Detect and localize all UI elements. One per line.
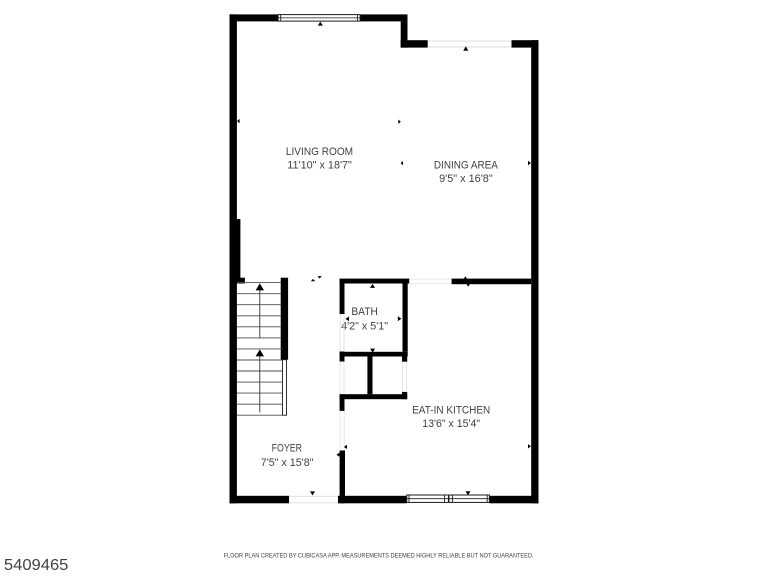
svg-text:13'6" x 15'4": 13'6" x 15'4"	[422, 418, 480, 430]
svg-text:11'10" x 18'7": 11'10" x 18'7"	[287, 160, 352, 172]
svg-text:9'5" x 16'8": 9'5" x 16'8"	[439, 173, 493, 185]
svg-text:7'5" x 15'8": 7'5" x 15'8"	[261, 457, 314, 469]
svg-text:FOYER: FOYER	[272, 443, 302, 455]
svg-text:4'2" x 5'1": 4'2" x 5'1"	[341, 320, 388, 332]
svg-text:5409465: 5409465	[4, 557, 69, 574]
svg-text:FLOOR PLAN CREATED BY CUBICASA: FLOOR PLAN CREATED BY CUBICASA APP. MEAS…	[224, 552, 534, 559]
svg-text:EAT-IN KITCHEN: EAT-IN KITCHEN	[412, 405, 490, 417]
svg-text:DINING AREA: DINING AREA	[434, 159, 499, 171]
svg-text:BATH: BATH	[351, 306, 378, 318]
svg-text:LIVING ROOM: LIVING ROOM	[286, 146, 353, 158]
